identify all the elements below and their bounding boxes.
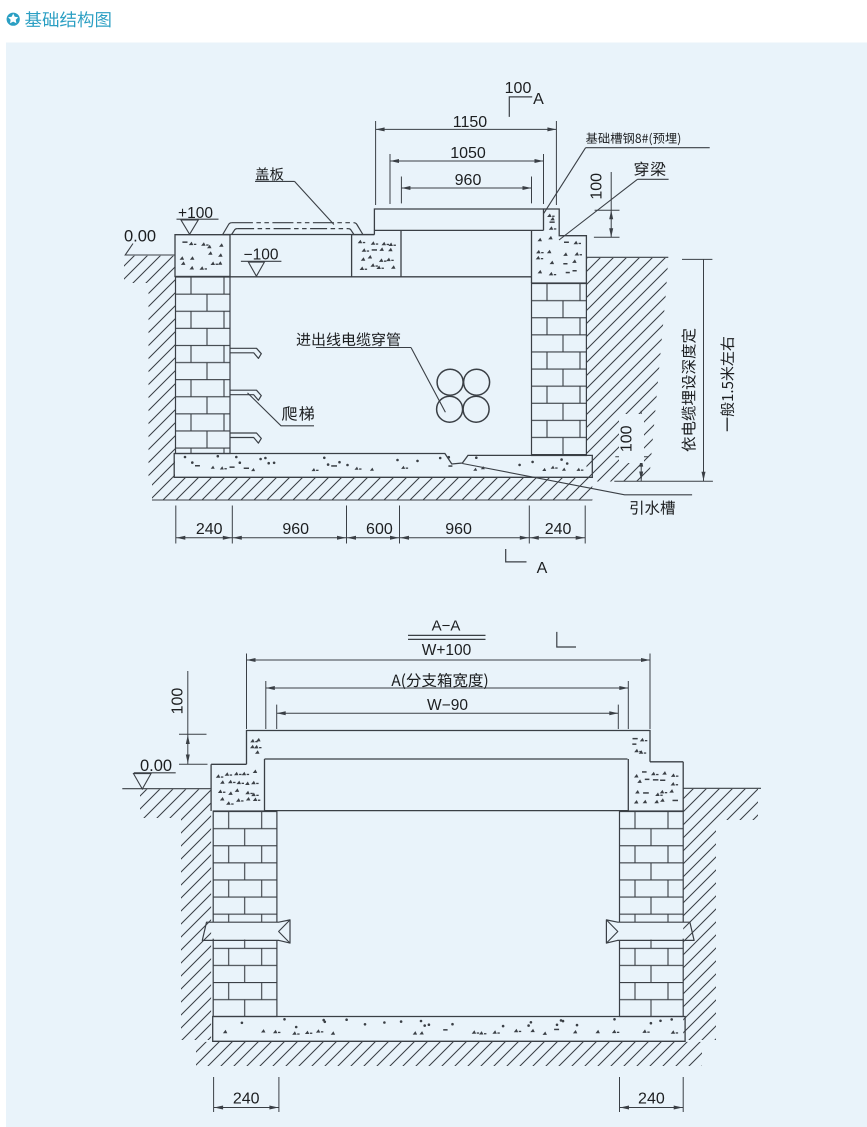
svg-text:960: 960 [282, 521, 309, 538]
svg-text:100: 100 [170, 688, 187, 715]
svg-text:W−90: W−90 [427, 697, 468, 714]
svg-text:A−A: A−A [432, 618, 461, 635]
svg-text:W+100: W+100 [422, 642, 472, 659]
svg-text:1050: 1050 [450, 145, 486, 162]
svg-text:0.00: 0.00 [140, 757, 172, 775]
svg-text:100: 100 [505, 80, 532, 97]
svg-text:600: 600 [366, 521, 393, 538]
svg-text:100: 100 [619, 425, 636, 452]
svg-text:240: 240 [638, 1090, 665, 1107]
svg-text:0.00: 0.00 [124, 228, 156, 246]
svg-text:240: 240 [196, 521, 223, 538]
svg-text:960: 960 [445, 521, 472, 538]
svg-text:960: 960 [455, 172, 482, 189]
svg-text:240: 240 [233, 1090, 260, 1107]
svg-text:A: A [533, 91, 544, 108]
svg-text:A: A [537, 560, 548, 577]
svg-text:1150: 1150 [453, 114, 488, 131]
svg-text:100: 100 [589, 173, 606, 200]
svg-text:240: 240 [545, 521, 572, 538]
